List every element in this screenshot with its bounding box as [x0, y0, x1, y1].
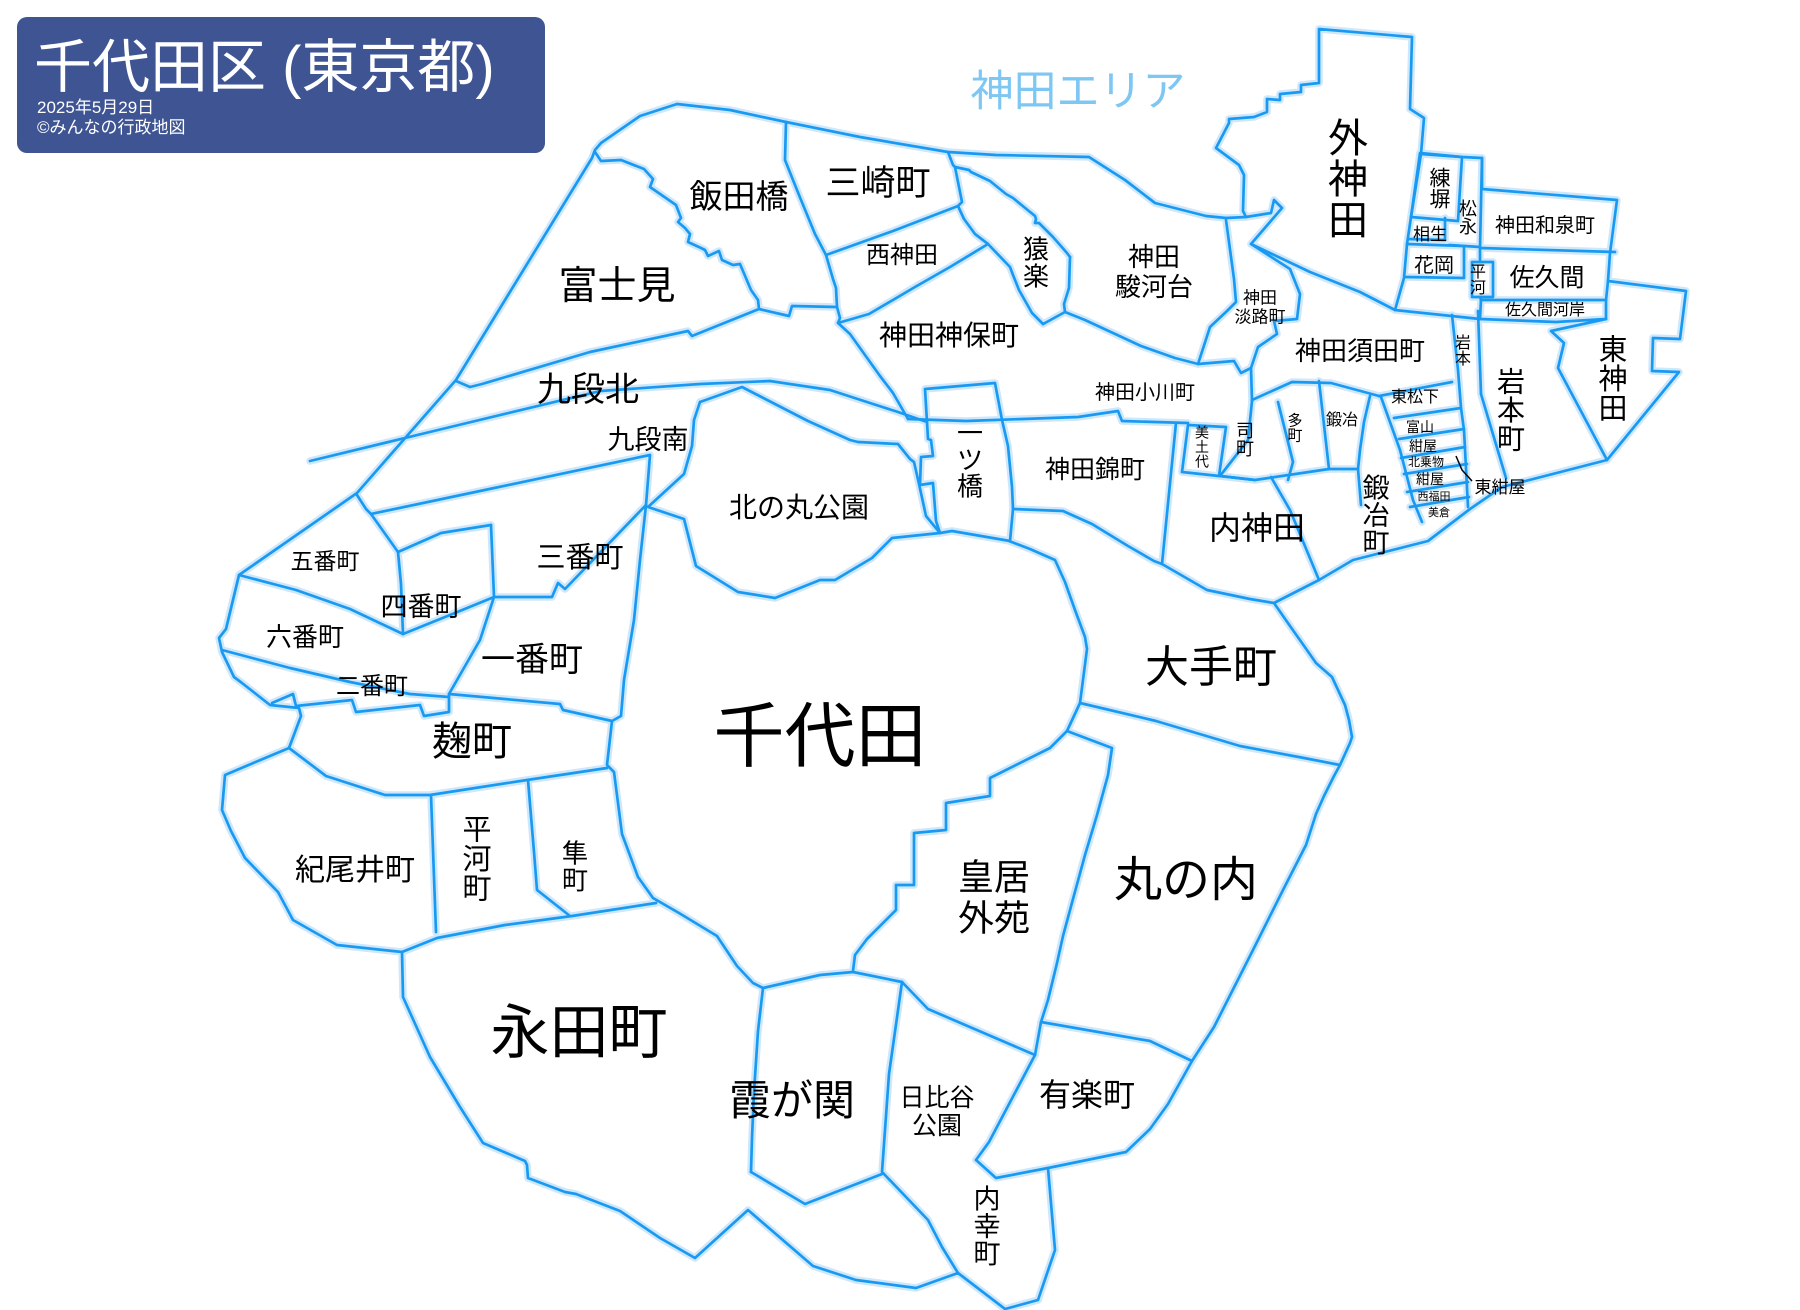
svg-text:富山: 富山	[1406, 419, 1434, 435]
svg-text:紺屋: 紺屋	[1409, 438, 1437, 454]
svg-text:永田町: 永田町	[490, 1000, 667, 1066]
svg-text:一ツ橋: 一ツ橋	[957, 419, 983, 502]
svg-text:千代田: 千代田	[713, 698, 926, 777]
svg-text:三崎町: 三崎町	[825, 164, 930, 203]
svg-text:北乗物: 北乗物	[1408, 455, 1444, 469]
svg-text:丸の内: 丸の内	[1114, 854, 1258, 907]
svg-text:四番町: 四番町	[381, 592, 462, 622]
svg-text:三番町: 三番町	[536, 542, 623, 574]
svg-text:九段南: 九段南	[608, 425, 689, 455]
svg-text:富士見: 富士見	[558, 265, 675, 308]
svg-text:霞が関: 霞が関	[729, 1077, 855, 1124]
svg-text:神田和泉町: 神田和泉町	[1495, 214, 1595, 237]
svg-text:佐久間: 佐久間	[1509, 264, 1584, 292]
svg-text:九段北: 九段北	[537, 371, 639, 409]
svg-text:有楽町: 有楽町	[1039, 1077, 1135, 1113]
svg-text:鍛冶町: 鍛冶町	[1363, 474, 1390, 559]
svg-text:飯田橋: 飯田橋	[690, 178, 789, 215]
svg-text:美倉: 美倉	[1428, 506, 1450, 519]
svg-text:東紺屋: 東紺屋	[1475, 478, 1526, 497]
svg-text:美土代: 美土代	[1195, 425, 1209, 470]
svg-text:神田駿河台: 神田駿河台	[1115, 242, 1193, 302]
svg-text:紺屋: 紺屋	[1416, 471, 1444, 487]
svg-text:紀尾井町: 紀尾井町	[295, 854, 415, 887]
svg-text:神田錦町: 神田錦町	[1045, 456, 1145, 484]
svg-text:神田エリア: 神田エリア	[971, 68, 1186, 116]
svg-text:猿楽: 猿楽	[1023, 235, 1049, 292]
svg-text:岩本: 岩本	[1455, 333, 1471, 367]
svg-text:花岡: 花岡	[1414, 254, 1454, 277]
svg-text:神田小川町: 神田小川町	[1095, 381, 1195, 404]
svg-text:二番町: 二番町	[336, 673, 408, 700]
svg-text:内幸町: 内幸町	[974, 1185, 1001, 1270]
svg-text:一番町: 一番町	[481, 641, 583, 679]
svg-text:平河町: 平河町	[462, 814, 491, 905]
svg-text:神田淡路町: 神田淡路町	[1235, 288, 1286, 326]
svg-text:東神田: 東神田	[1598, 333, 1627, 425]
svg-text:五番町: 五番町	[291, 548, 360, 574]
svg-text:西福田: 西福田	[1418, 489, 1451, 503]
svg-text:西神田: 西神田	[866, 242, 938, 269]
svg-text:佐久間河岸: 佐久間河岸	[1505, 301, 1585, 319]
svg-text:神田神保町: 神田神保町	[879, 320, 1019, 351]
svg-text:北の丸公園: 北の丸公園	[729, 492, 869, 523]
svg-text:司町: 司町	[1236, 421, 1254, 459]
svg-text:大手町: 大手町	[1145, 643, 1277, 692]
svg-text:練塀: 練塀	[1430, 167, 1451, 211]
svg-text:隼町: 隼町	[562, 839, 588, 896]
svg-text:松永: 松永	[1459, 199, 1477, 237]
svg-text:神田須田町: 神田須田町	[1295, 336, 1425, 366]
svg-text:麹町: 麹町	[432, 720, 512, 764]
svg-text:六番町: 六番町	[266, 622, 344, 652]
svg-text:東松下: 東松下	[1391, 388, 1439, 406]
svg-text:岩本町: 岩本町	[1497, 366, 1525, 454]
svg-text:皇居外苑: 皇居外苑	[958, 856, 1030, 938]
svg-text:平河: 平河	[1470, 263, 1486, 296]
svg-text:日比谷公園: 日比谷公園	[899, 1084, 974, 1140]
svg-text:相生: 相生	[1413, 225, 1447, 244]
svg-text:内神田: 内神田	[1209, 510, 1305, 546]
svg-text:鍛冶: 鍛冶	[1326, 411, 1358, 429]
svg-text:多町: 多町	[1287, 411, 1302, 444]
svg-text:外神田: 外神田	[1328, 117, 1368, 243]
